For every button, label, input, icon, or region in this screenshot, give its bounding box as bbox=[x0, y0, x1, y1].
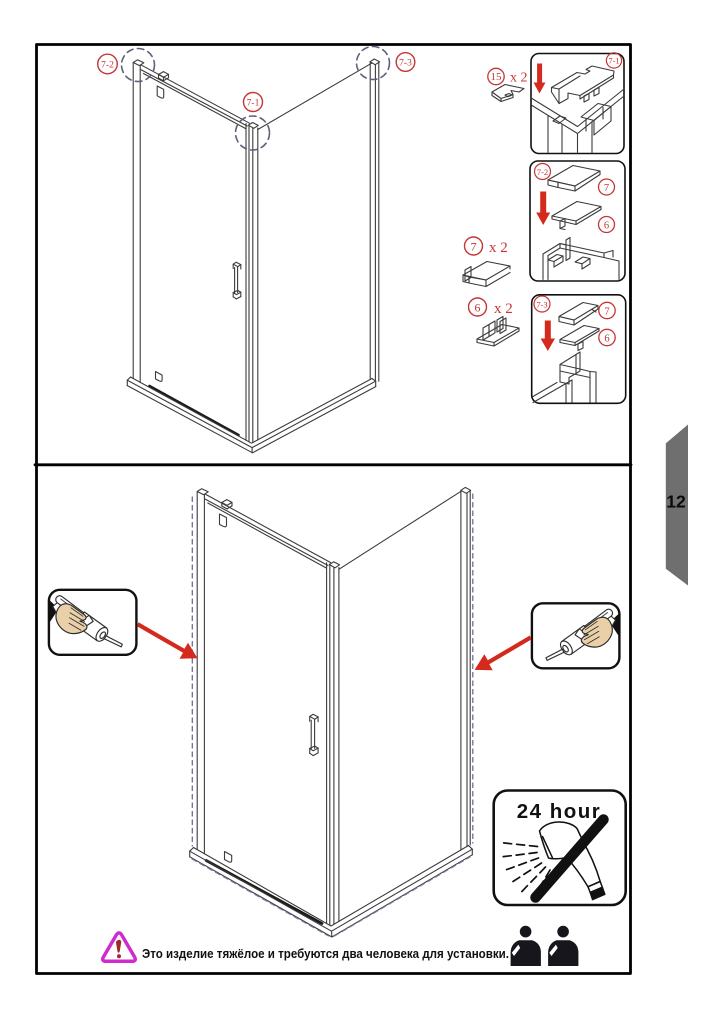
svg-text:7: 7 bbox=[604, 307, 609, 318]
svg-text:7-1: 7-1 bbox=[247, 99, 260, 109]
svg-text:7-2: 7-2 bbox=[101, 61, 114, 71]
svg-text:6: 6 bbox=[604, 334, 609, 345]
svg-text:7-3: 7-3 bbox=[399, 59, 412, 69]
svg-text:x 2: x 2 bbox=[510, 71, 528, 86]
svg-text:15: 15 bbox=[491, 71, 503, 83]
svg-text:x 2: x 2 bbox=[494, 301, 513, 317]
svg-text:6: 6 bbox=[475, 301, 481, 315]
svg-text:7: 7 bbox=[604, 183, 609, 194]
svg-text:7-1: 7-1 bbox=[608, 56, 619, 66]
svg-text:7-3: 7-3 bbox=[536, 299, 547, 309]
svg-text:Это изделие тяжёлое и требуютс: Это изделие тяжёлое и требуются два чело… bbox=[142, 947, 509, 961]
svg-text:x 2: x 2 bbox=[489, 240, 508, 256]
svg-text:24 hour: 24 hour bbox=[517, 800, 602, 823]
svg-text:12: 12 bbox=[666, 492, 686, 512]
svg-text:7-2: 7-2 bbox=[537, 167, 548, 177]
svg-text:7: 7 bbox=[471, 240, 477, 254]
svg-text:6: 6 bbox=[604, 221, 609, 232]
